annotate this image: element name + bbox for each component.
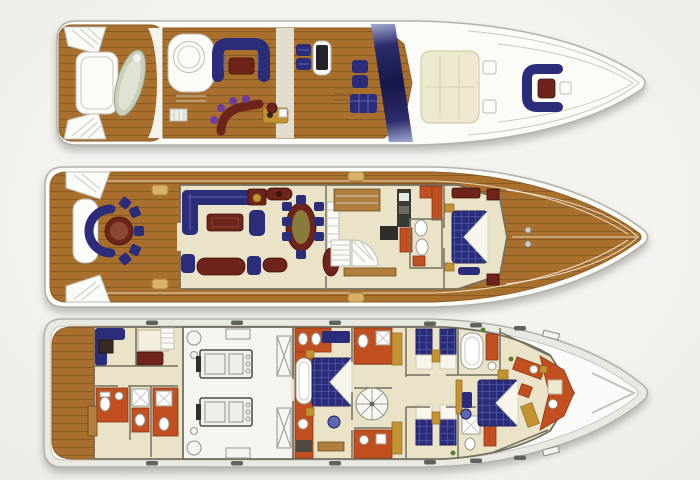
flybridge-aft-deck	[59, 25, 163, 141]
bed-bench	[458, 267, 480, 275]
ottoman	[328, 416, 340, 428]
toilet	[299, 333, 308, 345]
swim-platform	[52, 327, 94, 459]
ac-grille	[296, 440, 312, 452]
vip-bench	[462, 392, 472, 408]
table-lamp	[253, 194, 261, 202]
companion-seat	[352, 75, 368, 88]
shower	[376, 434, 386, 444]
side-deck-step	[152, 279, 168, 289]
ottoman	[461, 409, 471, 419]
flybridge-deck-plan	[57, 21, 645, 145]
toilet	[159, 418, 169, 431]
wardrobe	[487, 189, 499, 200]
bench	[318, 442, 344, 451]
guest-head-fwd	[461, 333, 498, 370]
bathtub	[461, 333, 483, 369]
cocktail-table	[267, 103, 277, 113]
bidet	[312, 333, 321, 345]
basin	[360, 436, 369, 445]
yacht-deck-plans-page	[0, 0, 700, 480]
toilet	[358, 335, 368, 348]
engine-port	[196, 350, 252, 378]
pillow	[440, 355, 456, 369]
lobby-sideboard	[344, 268, 396, 276]
sideboard-return	[263, 258, 287, 272]
nightstand	[432, 412, 440, 424]
deck-plans-canvas	[0, 0, 700, 480]
wardrobe	[392, 333, 402, 365]
bathtub	[296, 358, 312, 404]
master-dresser	[322, 331, 350, 343]
lower-deck-plan	[44, 319, 648, 467]
aft-sideboard	[197, 258, 245, 275]
pillow	[416, 355, 432, 369]
bar-stool	[229, 97, 237, 105]
galley-counter	[334, 189, 380, 211]
salon-chair	[247, 256, 261, 275]
head-cabinet	[540, 366, 547, 373]
instrument-panel	[316, 45, 328, 70]
crew-berth-frame	[136, 352, 163, 365]
deck-hatch	[483, 61, 496, 74]
aft-table-top	[110, 222, 128, 240]
deck-hatch	[483, 100, 496, 113]
basin	[115, 392, 123, 400]
spiral-staircase	[356, 388, 388, 420]
side-deck-step	[152, 185, 168, 195]
bar-stool	[217, 104, 225, 112]
nightstand	[445, 263, 454, 271]
crew-table	[99, 340, 113, 353]
dresser	[452, 188, 480, 198]
toilet	[135, 414, 145, 426]
salon-chair	[181, 254, 195, 273]
side-deck-step	[348, 172, 364, 181]
basin	[298, 419, 308, 429]
companion-seat	[352, 60, 368, 73]
settee-table	[229, 58, 254, 74]
sun-lounge	[350, 94, 377, 113]
toilet	[100, 397, 110, 411]
basin	[549, 400, 558, 409]
oven	[399, 206, 409, 214]
basin	[488, 362, 496, 370]
toilet-tank	[100, 392, 110, 397]
bar-stool	[242, 95, 250, 103]
nightstand	[445, 204, 454, 212]
bow-hatch	[560, 82, 571, 94]
red-mat	[413, 256, 425, 266]
red-cabinet	[486, 334, 498, 360]
toilet	[465, 438, 475, 450]
windlass	[525, 227, 531, 233]
nightstand	[306, 408, 314, 416]
crew-locker	[88, 406, 97, 436]
toilet	[416, 239, 428, 255]
nightstand	[432, 350, 440, 362]
fridge	[399, 193, 409, 201]
engine-starboard	[196, 398, 252, 426]
console-bowl	[276, 191, 282, 197]
armchair	[249, 210, 265, 236]
galley-red-return	[432, 186, 442, 220]
bar-icebox	[279, 109, 287, 117]
bow-table	[538, 79, 555, 98]
bar-stool	[210, 116, 218, 124]
side-deck-step	[348, 293, 364, 302]
cooktop-island	[380, 226, 398, 240]
spiral-post	[370, 402, 375, 407]
engine-room	[183, 327, 296, 459]
main-deck-plan	[45, 167, 648, 307]
stair-flight	[331, 240, 350, 266]
windlass	[525, 241, 531, 247]
nightstand	[306, 350, 314, 358]
head-counter	[548, 380, 562, 394]
wardrobe	[487, 274, 499, 285]
wardrobe	[456, 380, 462, 414]
wardrobe	[392, 422, 402, 454]
dining-table-top	[292, 210, 310, 244]
wash-basin	[415, 220, 427, 236]
